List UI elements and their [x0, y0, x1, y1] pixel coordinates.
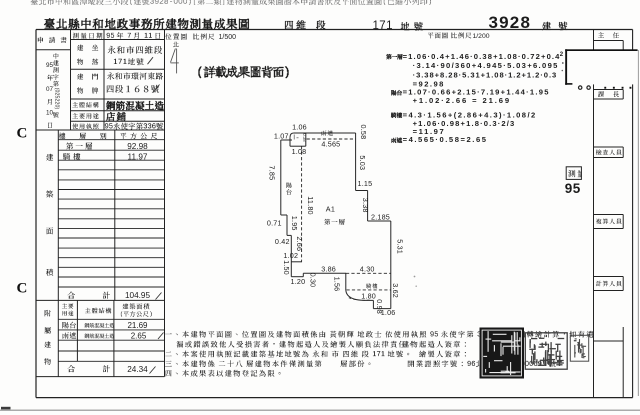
svg-text:95: 95 [46, 62, 54, 69]
svg-text:21.69: 21.69 [127, 321, 148, 330]
svg-text:1.08: 1.08 [292, 147, 307, 156]
svg-text:11.97: 11.97 [128, 152, 148, 161]
svg-text:·3.38+8.28·5.31+1.08·1.2+1.2·0: ·3.38+8.28·5.31+1.08·1.2+1.2·0.3 [413, 70, 558, 79]
svg-text:1.56: 1.56 [332, 277, 341, 292]
svg-text:4.565: 4.565 [321, 139, 340, 148]
svg-text:3.38: 3.38 [361, 198, 370, 213]
svg-text:1/200: 1/200 [473, 33, 490, 40]
svg-text:2.66: 2.66 [295, 236, 304, 251]
svg-text:2.185: 2.185 [371, 212, 390, 221]
svg-text:=4.565·0.58=2.65: =4.565·0.58=2.65 [403, 135, 488, 144]
svg-text:+1.02·2.66 = 21.69: +1.02·2.66 = 21.69 [413, 96, 511, 105]
svg-text:24.34: 24.34 [127, 365, 148, 374]
svg-text:1.02: 1.02 [283, 251, 298, 260]
svg-text:1.95: 1.95 [290, 216, 299, 231]
svg-text:0.71: 0.71 [267, 218, 282, 227]
svg-text:0.58: 0.58 [359, 125, 368, 140]
svg-text:5.03: 5.03 [358, 155, 367, 170]
svg-text:1.15: 1.15 [358, 179, 373, 188]
svg-text:A1: A1 [326, 205, 335, 214]
svg-text:10: 10 [46, 110, 54, 117]
svg-text:1.06: 1.06 [381, 308, 396, 317]
svg-text:104.95: 104.95 [125, 291, 150, 300]
svg-text:·3.14·90/360+4.945·5.03+6.095: ·3.14·90/360+4.945·5.03+6.095 [413, 61, 559, 70]
svg-text:0.30: 0.30 [308, 273, 317, 288]
svg-text:171: 171 [373, 20, 393, 32]
svg-text:C: C [17, 126, 28, 142]
svg-text:=1.06·0.4+1.46·0.38+1.08·0.72+: =1.06·0.4+1.46·0.38+1.08·0.72+0.4 [403, 52, 561, 61]
svg-text:92.98: 92.98 [127, 142, 148, 151]
svg-text:2.65: 2.65 [131, 331, 147, 340]
svg-text:4.30: 4.30 [360, 265, 375, 274]
svg-text:1.06: 1.06 [292, 122, 307, 131]
svg-text:(025220): (025220) [53, 88, 59, 110]
svg-text:1.80: 1.80 [361, 292, 376, 301]
svg-text:1/500: 1/500 [219, 34, 237, 41]
svg-text:11.80: 11.80 [306, 196, 315, 214]
svg-text:95: 95 [565, 181, 581, 196]
svg-text:3.62: 3.62 [391, 283, 400, 298]
svg-text:0.42: 0.42 [275, 237, 290, 246]
svg-text:1.50: 1.50 [282, 260, 291, 275]
svg-text:5.31: 5.31 [395, 239, 404, 254]
svg-text:07: 07 [46, 86, 54, 93]
svg-text:1.07: 1.07 [274, 132, 289, 141]
svg-text:0.38: 0.38 [302, 133, 307, 142]
svg-text:7.85: 7.85 [267, 166, 276, 181]
svg-text:C: C [17, 281, 28, 297]
svg-text:1.20: 1.20 [291, 277, 306, 286]
svg-text:3.86: 3.86 [321, 265, 336, 274]
